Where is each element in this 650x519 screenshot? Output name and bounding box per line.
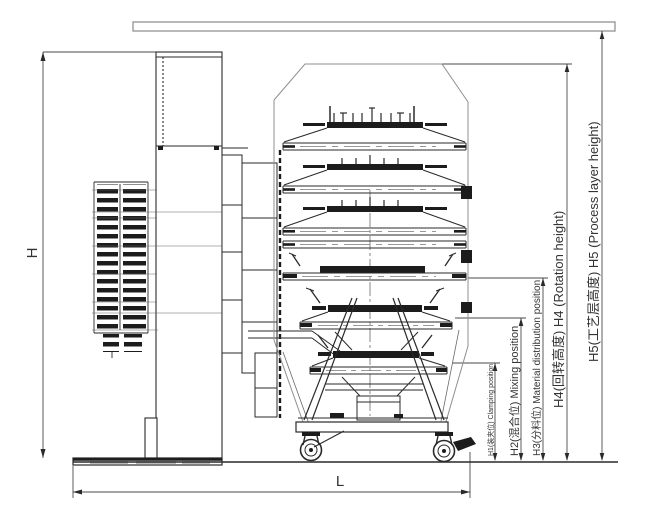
dimension-h5-label: H5(工艺层高度) H5 (Process layer height): [586, 121, 601, 362]
column-foot: [145, 418, 157, 458]
lift-carriage: [222, 150, 280, 418]
ceiling-rail: [133, 22, 615, 31]
clamping-bowl: [310, 335, 447, 420]
dimension-h2-label: H2(混合位) Mixing position: [507, 326, 521, 456]
machine-elevation-drawing: H L H1(装夹位) Clamping position H2(混合位) Mi…: [0, 0, 650, 519]
dimension-h1-label: H1(装夹位) Clamping position: [486, 364, 495, 456]
dimension-l-label: L: [336, 473, 344, 490]
technical-drawing-page: H L H1(装夹位) Clamping position H2(混合位) Mi…: [0, 0, 650, 519]
dimension-h-label: H: [24, 248, 41, 259]
bowl-layer-3: [283, 197, 466, 248]
dimension-h3-label: H3(分料位) Material distribution position: [530, 280, 543, 456]
envelope-latches: [461, 186, 472, 313]
brake-lever: [453, 437, 476, 451]
distribution-bowl: [283, 253, 466, 280]
dimension-h4-label: H4(回转高度) H4 (Rotation height): [551, 211, 566, 408]
caster-left: [301, 431, 345, 461]
bowl-layer-2: [283, 155, 466, 193]
bowl-layer-1: [283, 106, 466, 150]
